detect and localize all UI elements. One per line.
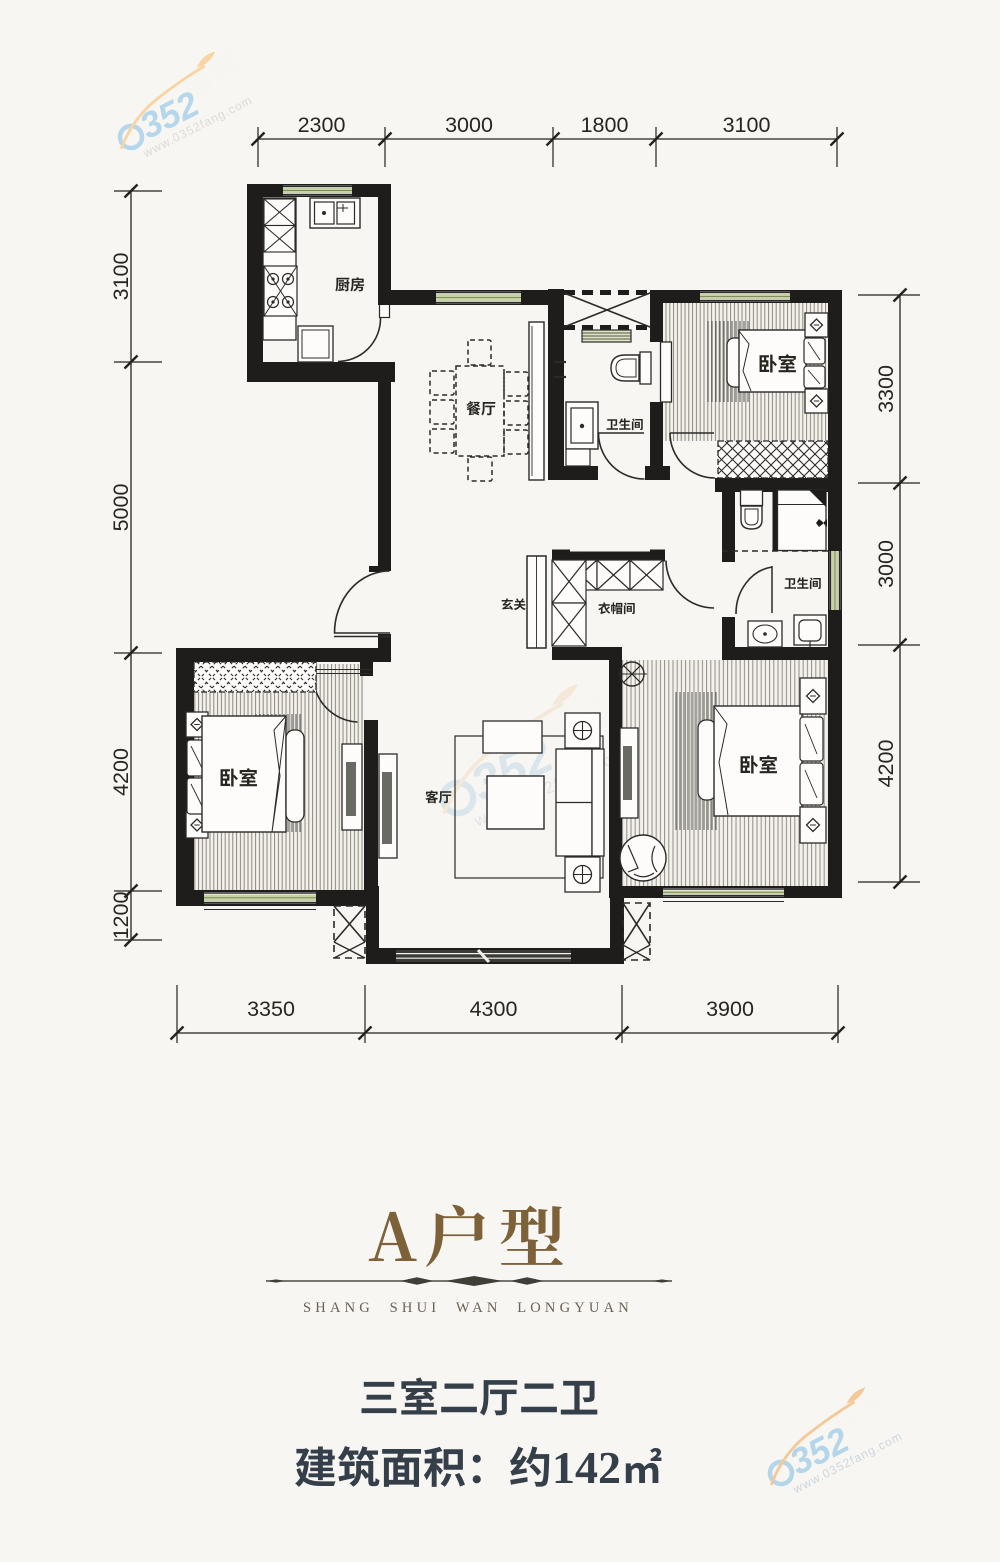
svg-text:142: 142	[552, 1442, 621, 1493]
svg-text:4200: 4200	[874, 740, 898, 788]
svg-text:SHANG SHUI WAN LONGYUAN: SHANG SHUI WAN LONGYUAN	[303, 1300, 633, 1316]
svg-text:2300: 2300	[298, 113, 346, 137]
svg-text:5000: 5000	[109, 484, 133, 532]
svg-text:3900: 3900	[706, 997, 754, 1021]
svg-text:3100: 3100	[109, 253, 133, 301]
svg-text:1800: 1800	[581, 113, 629, 137]
svg-text:4300: 4300	[470, 997, 518, 1021]
svg-text:4200: 4200	[109, 748, 133, 796]
svg-text:3300: 3300	[874, 365, 898, 413]
svg-text:3000: 3000	[874, 540, 898, 588]
svg-text:3350: 3350	[247, 997, 295, 1021]
svg-text:1200: 1200	[109, 892, 133, 940]
svg-text:3100: 3100	[723, 113, 771, 137]
svg-text:3000: 3000	[445, 113, 493, 137]
